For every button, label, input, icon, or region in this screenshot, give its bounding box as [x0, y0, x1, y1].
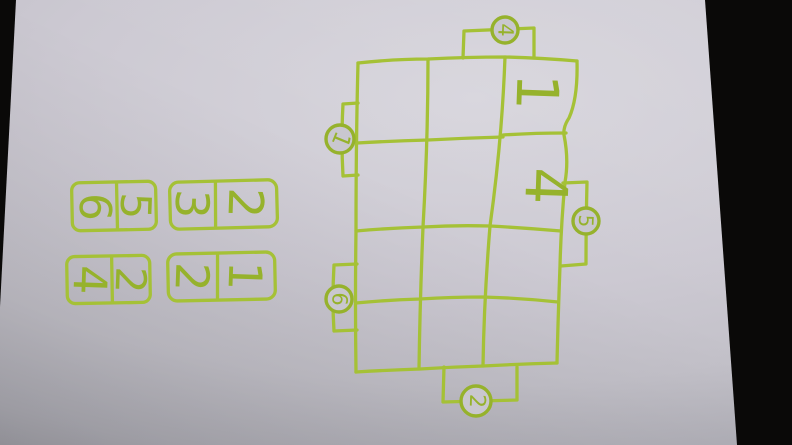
tab-bottom	[443, 367, 517, 416]
grid-line	[419, 59, 428, 369]
grid-line	[503, 133, 566, 135]
tab-number: 6	[328, 292, 349, 306]
marker-drawing	[0, 0, 792, 445]
domino-number: 3	[169, 189, 216, 220]
domino-number: 2	[169, 262, 216, 293]
grid-line	[357, 137, 503, 143]
tab-number: 2	[465, 394, 487, 409]
grid-cell-number: 4	[516, 167, 575, 206]
tab-number: 4	[494, 23, 515, 37]
grid-cell-number: 1	[507, 73, 566, 112]
grid-line	[356, 226, 561, 231]
domino-number: 2	[220, 187, 269, 219]
domino-number: 1	[222, 261, 269, 292]
tab-number: 5	[576, 214, 596, 227]
domino-number: 5	[114, 192, 157, 220]
grid-line	[356, 63, 359, 372]
grid-line	[356, 363, 557, 372]
domino-number: 2	[109, 266, 152, 294]
grid-line	[356, 297, 558, 303]
photo-of-paper-puzzle: 1 4 4 1 6 5 2 6 5 3 2 4 2 2 1	[0, 0, 792, 445]
grid-line	[358, 57, 577, 63]
